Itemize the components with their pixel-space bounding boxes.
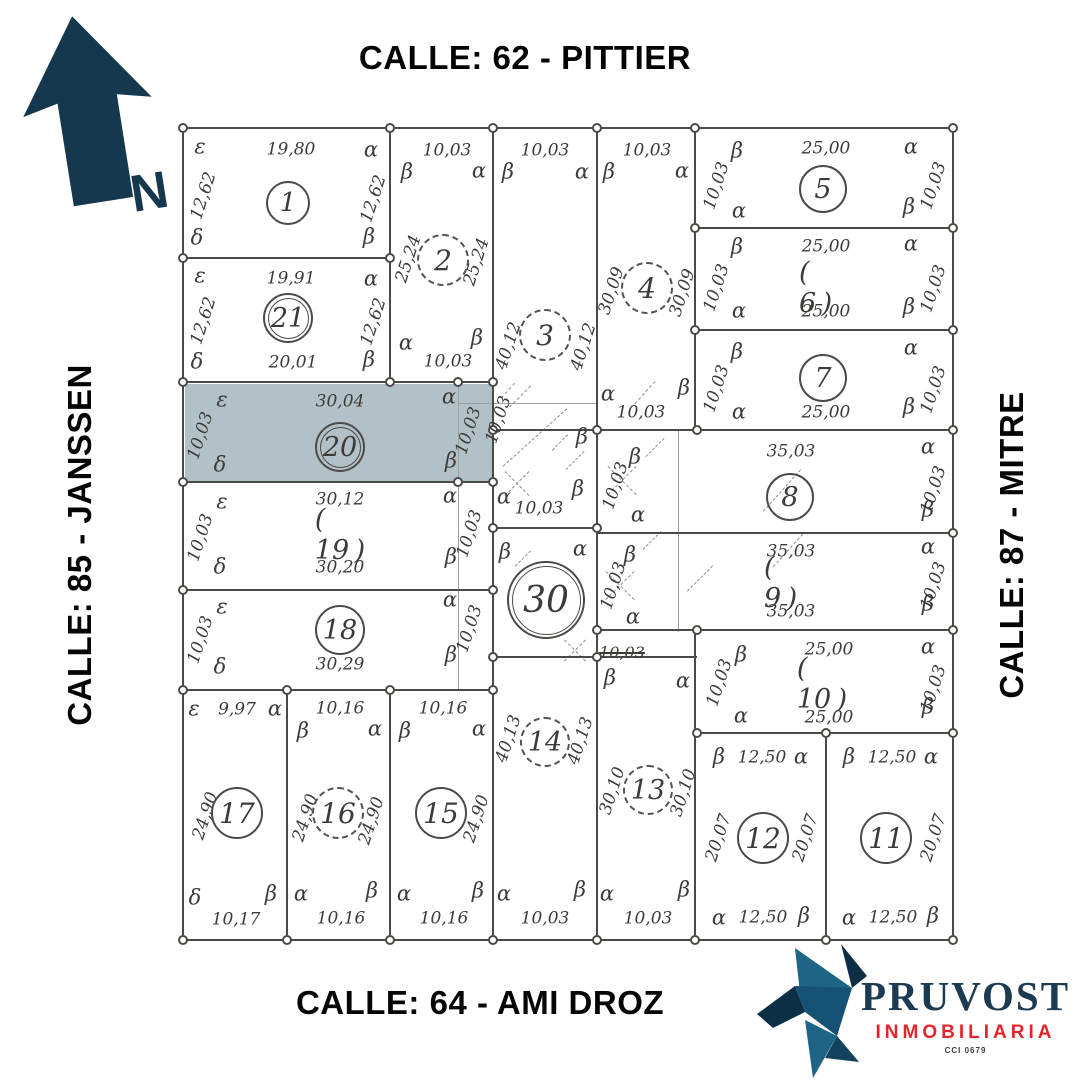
- survey-node: [592, 123, 602, 133]
- corner-letter: β: [574, 880, 586, 901]
- boundary-line: [493, 527, 599, 530]
- corner-letter: δ: [214, 455, 227, 476]
- measurement-label: 10,03: [918, 263, 949, 315]
- logo-name: PRUVOST: [853, 972, 1078, 1020]
- measurement-label: 25,00: [802, 405, 851, 422]
- corner-letter: α: [497, 884, 511, 905]
- survey-node: [385, 123, 395, 133]
- corner-letter: α: [924, 747, 938, 768]
- lot-number-text: 5: [814, 174, 831, 205]
- measurement-label: 25,00: [802, 141, 851, 158]
- lot-number-text: ( 6 ): [799, 257, 847, 319]
- lot-number: ( 10 ): [798, 660, 846, 708]
- corner-letter: β: [713, 747, 725, 768]
- corner-letter: α: [601, 384, 615, 405]
- corner-letter: α: [268, 699, 282, 720]
- measurement-label: 10,03: [701, 160, 732, 212]
- measurement-label: 20,07: [790, 812, 821, 864]
- corner-letter: β: [445, 451, 457, 472]
- lot-number: ( 19 ): [315, 510, 365, 560]
- corner-letter: α: [842, 908, 856, 929]
- survey-node: [592, 625, 602, 635]
- lot-number: 2: [417, 234, 469, 286]
- survey-node: [948, 528, 958, 538]
- corner-letter: δ: [189, 888, 202, 909]
- lot-number: 15: [415, 787, 467, 839]
- corner-letter: β: [922, 594, 934, 615]
- corner-letter: α: [626, 607, 640, 628]
- corner-letter: β: [903, 197, 915, 218]
- corner-letter: δ: [191, 228, 204, 249]
- survey-node: [385, 253, 395, 263]
- measurement-label: 10,03: [918, 364, 949, 416]
- lot-number: 20: [315, 422, 365, 472]
- lot-number-text: 13: [631, 775, 665, 806]
- corner-letter: α: [712, 908, 726, 929]
- corner-letter: β: [366, 881, 378, 902]
- corner-letter: β: [572, 479, 584, 500]
- corner-letter: α: [732, 301, 746, 322]
- survey-node: [488, 523, 498, 533]
- corner-letter: α: [734, 706, 748, 727]
- measurement-label: 10,03: [424, 354, 473, 371]
- measurement-label: 10,03: [599, 645, 645, 661]
- annulment-dash: [503, 408, 568, 466]
- corner-letter: α: [921, 437, 935, 458]
- measurement-label: 12,62: [358, 296, 389, 348]
- lot-number-text: 18: [323, 615, 357, 646]
- corner-letter: β: [363, 350, 375, 371]
- measurement-label: 30,29: [316, 657, 365, 674]
- survey-node: [385, 935, 395, 945]
- boundary-line: [597, 629, 955, 632]
- lot-number: 14: [520, 717, 570, 767]
- corner-letter: α: [904, 234, 918, 255]
- survey-node: [690, 935, 700, 945]
- measurement-label: 40,13: [565, 715, 596, 767]
- survey-node: [488, 935, 498, 945]
- lot-number-text: ( 10 ): [797, 653, 847, 715]
- logo-subtitle: INMOBILIARIA: [853, 1022, 1078, 1044]
- survey-node: [948, 123, 958, 133]
- corner-letter: α: [575, 162, 589, 183]
- corner-letter: α: [397, 884, 411, 905]
- survey-node: [948, 425, 958, 435]
- lot-number: 30: [507, 561, 585, 639]
- measurement-label: 9,97: [218, 702, 256, 719]
- corner-letter: α: [399, 333, 413, 354]
- corner-letter: β: [502, 162, 514, 183]
- corner-letter: α: [364, 140, 378, 161]
- corner-letter: β: [576, 427, 588, 448]
- measurement-label: 10,16: [420, 911, 469, 928]
- lot-number-text: 1: [280, 188, 297, 218]
- lot-number: 8: [766, 473, 814, 521]
- survey-node: [948, 223, 958, 233]
- lot-number-text: 14: [528, 727, 562, 758]
- measurement-label: 30,04: [316, 394, 365, 411]
- survey-node: [690, 123, 700, 133]
- survey-node: [385, 685, 395, 695]
- corner-letter: ε: [194, 137, 205, 158]
- lot-number-inner-ring: [268, 298, 309, 339]
- lot-number-text: ( 19 ): [315, 504, 365, 566]
- lot-number-inner-ring: [512, 566, 581, 635]
- measurement-label: 10,16: [419, 701, 468, 718]
- boundary-line: [182, 128, 185, 942]
- corner-letter: α: [443, 486, 457, 507]
- lot-number-inner-ring: [320, 427, 361, 468]
- corner-letter: α: [364, 269, 378, 290]
- corner-letter: β: [624, 545, 636, 566]
- survey-node: [692, 425, 702, 435]
- survey-node: [488, 685, 498, 695]
- corner-letter: α: [472, 719, 486, 740]
- corner-letter: β: [731, 237, 743, 258]
- measurement-label: 10,03: [521, 143, 570, 160]
- corner-letter: β: [927, 906, 939, 927]
- boundary-line: [695, 227, 955, 230]
- measurement-label: 10,03: [617, 405, 666, 422]
- corner-letter: β: [903, 297, 915, 318]
- lot-number-text: 4: [638, 272, 656, 305]
- corner-letter: δ: [214, 557, 227, 578]
- corner-letter: α: [904, 338, 918, 359]
- lot-number-text: 3: [536, 319, 554, 352]
- survey-node: [282, 685, 292, 695]
- survey-node: [948, 325, 958, 335]
- corner-letter: α: [573, 539, 587, 560]
- lot-number-text: 16: [320, 797, 356, 830]
- corner-letter: δ: [214, 657, 227, 678]
- corner-letter: α: [600, 884, 614, 905]
- annulment-dash: [635, 381, 656, 404]
- lot-number-text: 11: [868, 822, 904, 855]
- boundary-line: [183, 689, 495, 692]
- corner-letter: α: [794, 747, 808, 768]
- corner-letter: ε: [216, 597, 227, 618]
- lot-number: ( 6 ): [799, 264, 847, 312]
- survey-node: [692, 728, 702, 738]
- lot-number-text: 8: [781, 482, 798, 513]
- measurement-label: 10,03: [701, 262, 732, 314]
- corner-letter: β: [297, 721, 309, 742]
- measurement-label: 10,03: [918, 160, 949, 212]
- corner-letter: β: [678, 880, 690, 901]
- lot-number: ( 9 ): [764, 559, 812, 607]
- measurement-label: 10,03: [704, 657, 735, 709]
- lot-number: 1: [266, 181, 310, 225]
- measurement-label: 12,62: [188, 170, 219, 222]
- boundary-line: [825, 733, 828, 942]
- lot-number: 11: [860, 812, 912, 864]
- corner-letter: β: [798, 906, 810, 927]
- old-boundary-line: [458, 403, 598, 404]
- lot-number-text: ( 9 ): [764, 552, 812, 614]
- corner-letter: β: [399, 721, 411, 742]
- boundary-line: [286, 690, 289, 942]
- survey-node: [282, 935, 292, 945]
- survey-node: [178, 123, 188, 133]
- boundary-line: [183, 257, 392, 260]
- boundary-line: [183, 127, 955, 130]
- measurement-label: 12,62: [188, 295, 219, 347]
- boundary-line: [695, 329, 955, 332]
- measurement-label: 12,50: [868, 750, 917, 767]
- lot-number: 17: [211, 787, 263, 839]
- boundary-line: [183, 381, 495, 384]
- annulment-dash: [552, 434, 568, 450]
- corner-letter: α: [904, 137, 918, 158]
- lot-number-text: 2: [434, 244, 452, 277]
- survey-node: [488, 652, 498, 662]
- corner-letter: α: [472, 161, 486, 182]
- corner-letter: α: [732, 201, 746, 222]
- survey-node: [178, 477, 188, 487]
- lot-number: 5: [799, 165, 847, 213]
- measurement-label: 19,80: [267, 142, 316, 159]
- measurement-label: 20,07: [703, 812, 734, 864]
- measurement-label: 25,00: [802, 239, 851, 256]
- boundary-line: [493, 429, 955, 432]
- lot-number-text: 17: [219, 797, 255, 830]
- measurement-label: 10,03: [521, 911, 570, 928]
- lot-number: 7: [799, 354, 847, 402]
- measurement-label: 10,03: [185, 512, 216, 564]
- corner-letter: α: [368, 719, 382, 740]
- corner-letter: α: [442, 387, 456, 408]
- survey-plan-page: CALLE: 62 - PITTIER CALLE: 64 - AMI DROZ…: [0, 0, 1080, 1080]
- corner-letter: ε: [216, 492, 227, 513]
- survey-node: [385, 377, 395, 387]
- corner-letter: β: [603, 162, 615, 183]
- lot-number-text: 15: [423, 797, 459, 830]
- corner-letter: β: [265, 884, 277, 905]
- corner-letter: α: [732, 402, 746, 423]
- corner-letter: β: [922, 697, 934, 718]
- annulment-dash: [687, 565, 713, 591]
- measurement-label: 10,16: [316, 701, 365, 718]
- lot-number-text: 7: [814, 363, 831, 394]
- measurement-label: 12,50: [869, 910, 918, 927]
- corner-letter: α: [675, 161, 689, 182]
- survey-node: [690, 325, 700, 335]
- corner-letter: α: [631, 505, 645, 526]
- survey-node: [178, 585, 188, 595]
- corner-letter: β: [731, 141, 743, 162]
- corner-letter: β: [604, 668, 616, 689]
- corner-letter: β: [472, 881, 484, 902]
- survey-node: [592, 935, 602, 945]
- measurement-label: 10,03: [701, 363, 732, 415]
- lot-number: 4: [621, 262, 673, 314]
- corner-letter: β: [903, 397, 915, 418]
- corner-letter: β: [401, 162, 413, 183]
- measurement-label: 12,50: [738, 750, 787, 767]
- survey-node: [592, 523, 602, 533]
- measurement-label: 10,03: [624, 911, 673, 928]
- lot-number: 3: [519, 309, 571, 361]
- survey-node: [948, 625, 958, 635]
- corner-letter: β: [843, 747, 855, 768]
- lot-number: 16: [312, 787, 364, 839]
- corner-letter: β: [678, 378, 690, 399]
- measurement-label: 10,17: [212, 912, 261, 929]
- lot-number: 21: [263, 293, 313, 343]
- survey-node: [178, 253, 188, 263]
- annulment-dash: [645, 438, 664, 457]
- logo-registry: CCI 0679: [853, 1046, 1078, 1055]
- boundary-line: [492, 128, 495, 942]
- corner-letter: β: [731, 342, 743, 363]
- measurement-label: 12,50: [739, 910, 788, 927]
- corner-letter: α: [497, 487, 511, 508]
- corner-letter: ε: [194, 266, 205, 287]
- lot-number: 18: [315, 605, 365, 655]
- corner-letter: β: [735, 645, 747, 666]
- corner-letter: β: [499, 542, 511, 563]
- measurement-label: 35,03: [767, 444, 816, 461]
- measurement-label: 19,91: [267, 271, 316, 288]
- realtor-logo: PRUVOST INMOBILIARIA CCI 0679: [755, 940, 1080, 1080]
- boundary-line: [389, 690, 392, 942]
- survey-node: [488, 123, 498, 133]
- corner-letter: β: [363, 227, 375, 248]
- measurement-label: 10,03: [423, 143, 472, 160]
- cadastral-plan: ε19,80α12,6212,62δβε19,91α12,6212,62δ20,…: [0, 0, 1080, 1080]
- measurement-label: 10,03: [515, 501, 564, 518]
- measurement-label: 20,01: [269, 355, 318, 372]
- corner-letter: ε: [188, 699, 199, 720]
- corner-letter: α: [921, 537, 935, 558]
- measurement-label: 10,03: [623, 143, 672, 160]
- boundary-line: [596, 128, 599, 942]
- survey-node: [488, 585, 498, 595]
- survey-node: [178, 935, 188, 945]
- corner-letter: β: [471, 328, 483, 349]
- measurement-label: 20,07: [918, 812, 949, 864]
- annulment-dash: [565, 451, 584, 470]
- survey-node: [692, 625, 702, 635]
- corner-letter: α: [443, 590, 457, 611]
- measurement-label: 10,16: [317, 911, 366, 928]
- boundary-line: [597, 532, 955, 535]
- corner-letter: δ: [191, 352, 204, 373]
- corner-letter: ε: [216, 390, 227, 411]
- survey-node: [178, 377, 188, 387]
- corner-letter: α: [921, 637, 935, 658]
- corner-letter: α: [676, 671, 690, 692]
- survey-node: [178, 685, 188, 695]
- survey-node: [592, 425, 602, 435]
- survey-node: [821, 728, 831, 738]
- corner-letter: β: [922, 500, 934, 521]
- lot-number: 13: [623, 765, 673, 815]
- survey-node: [690, 223, 700, 233]
- measurement-label: 10,03: [185, 614, 216, 666]
- lot-number-text: 12: [745, 822, 781, 855]
- measurement-label: 12,62: [358, 173, 389, 225]
- lot-number: 12: [737, 812, 789, 864]
- survey-node: [948, 728, 958, 738]
- corner-letter: α: [294, 884, 308, 905]
- survey-node: [488, 377, 498, 387]
